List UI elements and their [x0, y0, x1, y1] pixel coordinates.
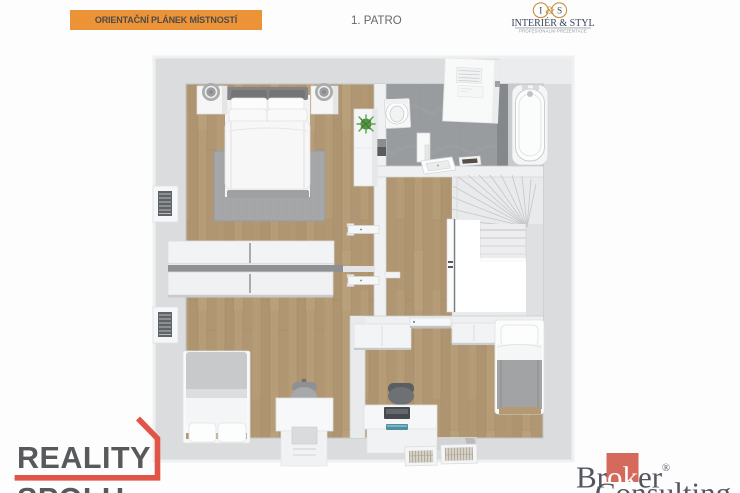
svg-text:Consulting: Consulting — [595, 476, 731, 493]
svg-text:®: ® — [662, 463, 670, 474]
svg-text:REALITY: REALITY — [17, 441, 151, 475]
svg-text:SPOLU: SPOLU — [17, 482, 125, 493]
svg-text:I: I — [539, 5, 542, 15]
svg-text:&: & — [545, 3, 555, 17]
svg-text:PROFESIONÁLNÍ PREZENTACE: PROFESIONÁLNÍ PREZENTACE — [519, 29, 587, 34]
svg-text:INTERIÉR & STYL: INTERIÉR & STYL — [511, 17, 594, 29]
svg-text:S: S — [557, 5, 562, 15]
